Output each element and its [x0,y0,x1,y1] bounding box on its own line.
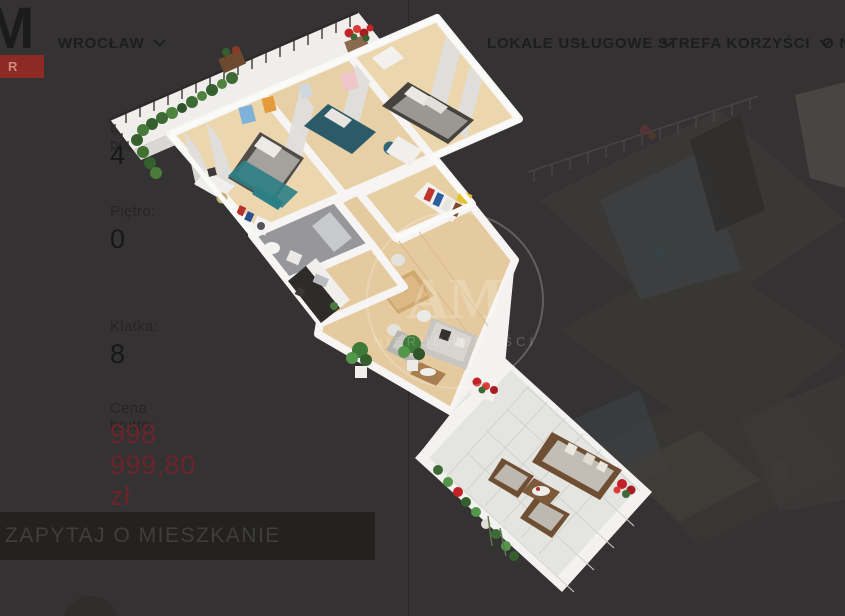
floor-plan-3d-render: AM NIERUCHOMOŚCI [0,0,845,616]
svg-text:NIERUCHOMOŚCI: NIERUCHOMOŚCI [373,334,537,349]
page: M R WROCŁAW OFERTA LOKALE USŁUGOWE STREF… [0,0,845,616]
apartment-render: AM NIERUCHOMOŚCI [109,12,652,592]
svg-text:AM: AM [407,266,504,331]
toilet [264,242,280,254]
